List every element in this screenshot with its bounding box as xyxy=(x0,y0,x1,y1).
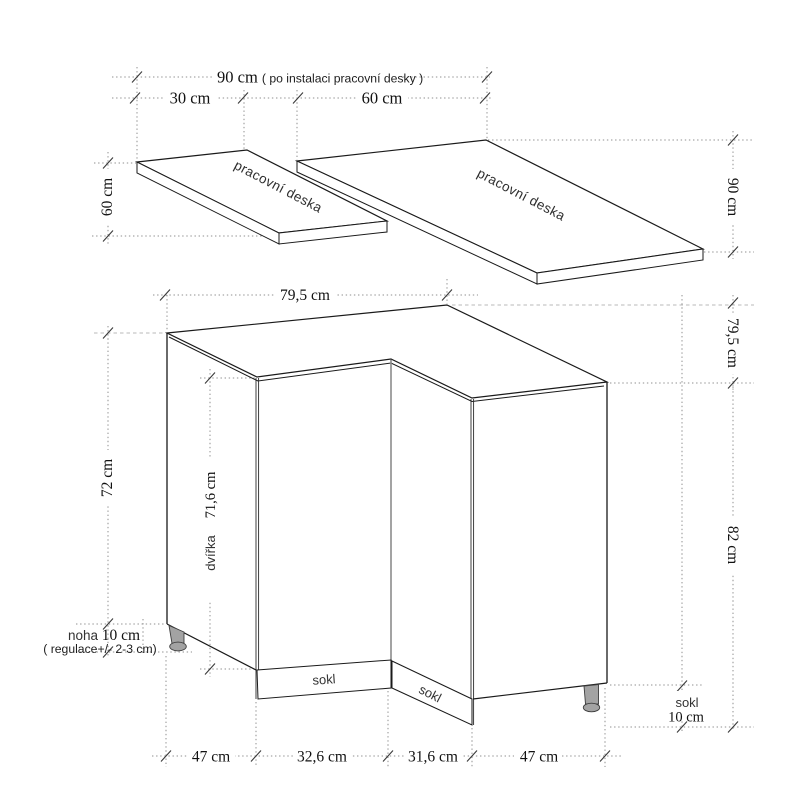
leg-left xyxy=(169,626,186,651)
cabinet-body: sokl sokl xyxy=(167,305,607,725)
cabinet-top-face xyxy=(167,305,607,398)
dim-door-height-value: 71,6 cm xyxy=(203,471,219,518)
dim-body-height-label: 72 cm xyxy=(99,459,116,497)
dim-bottom-1: 47 cm xyxy=(192,749,230,766)
plinth-right-value: 10 cm xyxy=(668,710,705,726)
plinth-right-label: sokl xyxy=(675,695,698,710)
dim-right-width-label: 60 cm xyxy=(362,89,403,108)
dim-right-depth-label: 90 cm xyxy=(724,178,741,216)
corner-cabinet-technical-drawing: pracovní deska pracovní deska sokl sok xyxy=(0,0,800,800)
leg-right xyxy=(583,685,599,712)
dim-door-height-word: dvířka xyxy=(203,535,218,571)
dim-bottom-3: 31,6 cm xyxy=(408,749,458,766)
dim-cabinet-width-label: 79,5 cm xyxy=(280,287,330,304)
dim-left-width-label: 30 cm xyxy=(170,89,211,108)
plinth-left-label: sokl xyxy=(312,671,336,688)
leg-note-line2: ( regulace+/- 2-3 cm) xyxy=(43,642,156,656)
dim-total-height-label: 82 cm xyxy=(724,526,741,564)
dim-bottom-2: 32,6 cm xyxy=(297,749,347,766)
dim-left-depth-label: 60 cm xyxy=(99,178,116,216)
dim-bottom-4: 47 cm xyxy=(520,749,558,766)
dim-cabinet-depth-label: 79,5 cm xyxy=(724,318,741,368)
